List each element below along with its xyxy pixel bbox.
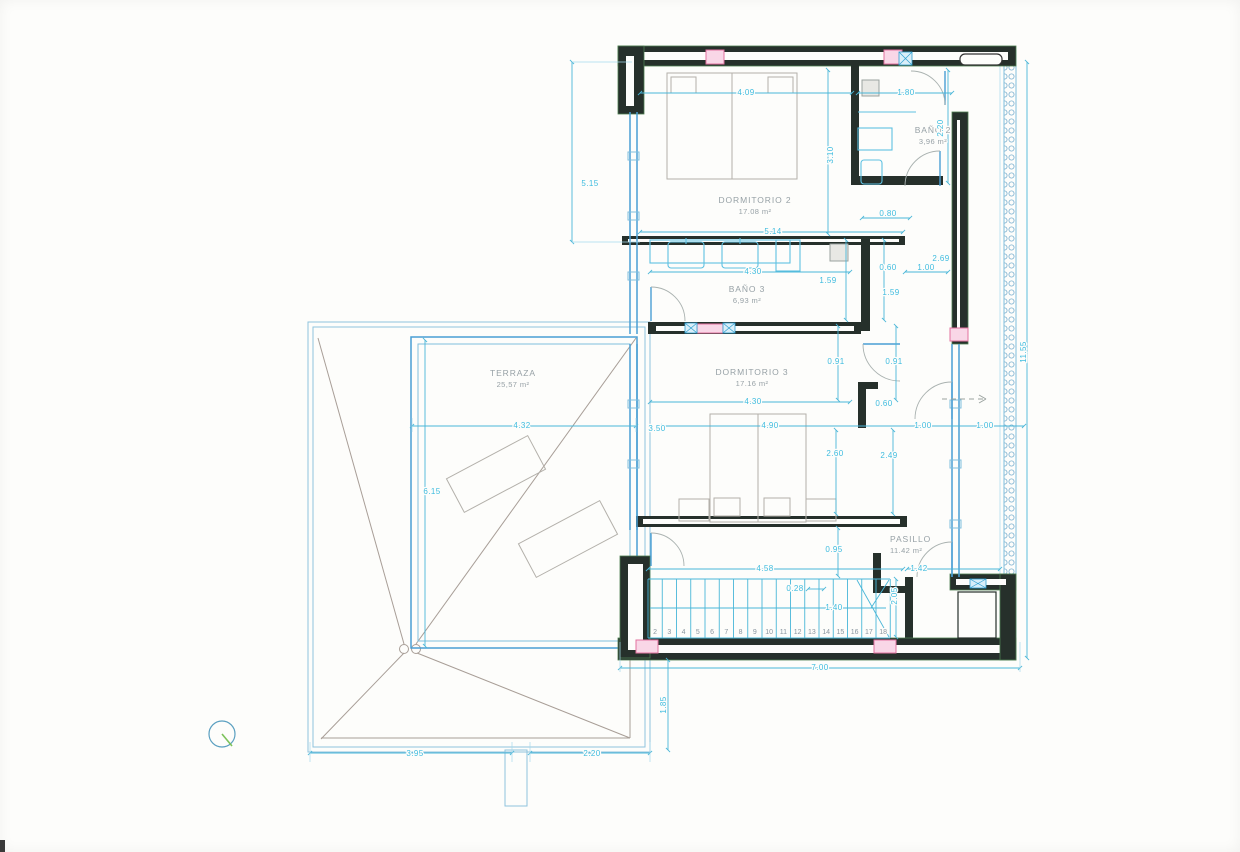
stair-number-12: 12 — [794, 629, 802, 636]
dimension-label-12: 1.59 — [882, 288, 899, 297]
dimension-label-2: 1.80 — [897, 88, 914, 97]
north-indicator-icon — [209, 721, 235, 747]
stair-number-6: 6 — [710, 629, 714, 636]
roof-boundary — [308, 322, 650, 806]
top-window — [960, 54, 1002, 65]
stair-number-10: 10 — [765, 629, 773, 636]
room-area-0: 17.08 m² — [739, 207, 772, 216]
dimension-label-14: 0.91 — [885, 357, 902, 366]
right-boundary-hatch — [1000, 50, 1016, 660]
stair-number-4: 4 — [682, 629, 686, 636]
dimension-label-9: 0.60 — [879, 263, 896, 272]
dimension-label-20: 4.90 — [761, 421, 778, 430]
dimension-label-5: 0.80 — [879, 209, 896, 218]
dimension-label-11: 2.69 — [932, 254, 949, 263]
room-name-3: DORMITORIO 3 — [716, 367, 789, 377]
stair-number-17: 17 — [865, 629, 873, 636]
walls — [618, 46, 1016, 660]
dimension-label-27: 4.58 — [756, 564, 773, 573]
room-labels: DORMITORIO 217.08 m²BAÑO 23,96 m²BAÑO 36… — [490, 125, 951, 555]
stair-number-2: 2 — [653, 629, 657, 636]
floor-plan-sheet: DORMITORIO 217.08 m²BAÑO 23,96 m²BAÑO 36… — [0, 0, 1240, 852]
room-area-5: 11.42 m² — [890, 546, 922, 555]
stair-number-3: 3 — [667, 629, 671, 636]
dimension-label-25: 6.15 — [423, 487, 440, 496]
stair-number-15: 15 — [836, 629, 844, 636]
scan-mark — [0, 840, 5, 852]
room-name-2: BAÑO 3 — [729, 284, 766, 294]
dimension-label-10: 1.00 — [917, 263, 934, 272]
stair-step-numbers: 23456789101112131415161718 — [653, 629, 887, 636]
dimension-label-23: 2.60 — [826, 449, 843, 458]
room-name-5: PASILLO — [890, 534, 931, 544]
bed-dormitorio-2 — [667, 73, 797, 179]
stair-number-18: 18 — [879, 629, 887, 636]
room-area-4: 25,57 m² — [497, 380, 530, 389]
dimension-label-17: 0.60 — [875, 399, 892, 408]
stair-number-14: 14 — [822, 629, 830, 636]
bed-dormitorio-3 — [679, 414, 836, 522]
dimension-label-4: 3.10 — [826, 146, 835, 163]
dimension-label-18: 4.32 — [513, 421, 530, 430]
stair-number-16: 16 — [851, 629, 859, 636]
dimension-label-30: 2.05 — [890, 587, 899, 604]
room-area-1: 3,96 m² — [919, 137, 947, 146]
dimension-label-34: 3.95 — [406, 749, 423, 758]
dimension-label-13: 0.91 — [827, 357, 844, 366]
room-area-3: 17.16 m² — [736, 379, 769, 388]
dimension-label-3: 2.20 — [936, 119, 945, 136]
stair-number-7: 7 — [724, 629, 728, 636]
dimension-label-35: 2.20 — [583, 749, 600, 758]
room-name-0: DORMITORIO 2 — [719, 195, 792, 205]
dimension-label-31: 1.40 — [825, 603, 842, 612]
stair-number-9: 9 — [753, 629, 757, 636]
floor-plan-drawing: DORMITORIO 217.08 m²BAÑO 23,96 m²BAÑO 36… — [0, 0, 1240, 852]
dimension-label-22: 1.00 — [976, 421, 993, 430]
dimension-label-0: 5.15 — [581, 179, 598, 188]
room-area-2: 6,93 m² — [733, 296, 761, 305]
dimension-label-29: 0.28 — [786, 584, 803, 593]
dimension-label-33: 1.85 — [659, 696, 668, 713]
dimension-label-7: 4.30 — [744, 267, 761, 276]
dimension-label-19: 3.50 — [648, 424, 665, 433]
direction-arrow — [942, 395, 986, 403]
dimension-label-16: 4.30 — [744, 397, 761, 406]
stair-number-13: 13 — [808, 629, 816, 636]
dimension-label-26: 0.95 — [825, 545, 842, 554]
dimension-label-6: 5.14 — [764, 227, 781, 236]
terrace-loungers — [446, 436, 617, 578]
stair-number-11: 11 — [780, 629, 787, 636]
stair-number-8: 8 — [739, 629, 743, 636]
dimension-label-21: 1.00 — [914, 421, 931, 430]
roof-hip-lines — [318, 338, 636, 739]
stair-number-5: 5 — [696, 629, 700, 636]
dimension-label-15: 11.55 — [1019, 341, 1028, 363]
dimension-label-28: 1.42 — [910, 564, 927, 573]
dimension-label-32: 7.00 — [811, 663, 828, 672]
dimension-label-1: 4.09 — [737, 88, 754, 97]
dimension-label-24: 2.49 — [880, 451, 897, 460]
dimension-label-8: 1.59 — [819, 276, 836, 285]
room-name-1: BAÑO 2 — [915, 125, 952, 135]
room-name-4: TERRAZA — [490, 368, 536, 378]
